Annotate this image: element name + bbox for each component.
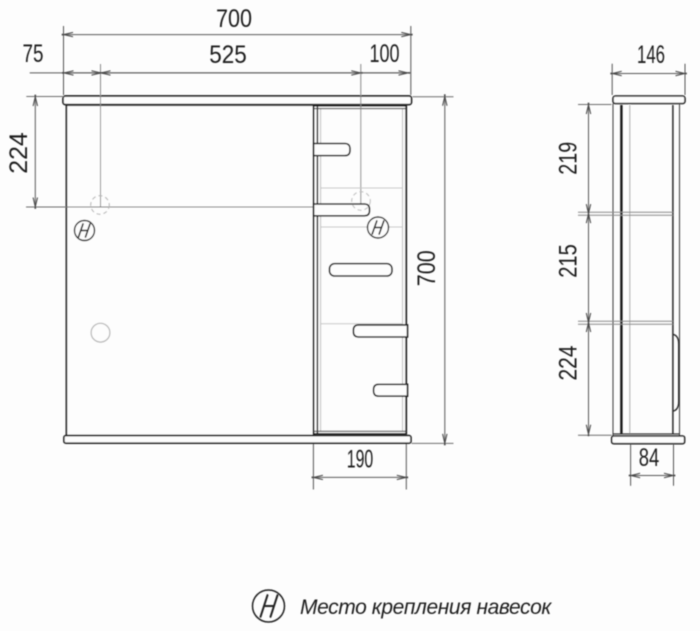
- svg-text:75: 75: [23, 40, 44, 68]
- svg-text:146: 146: [637, 41, 665, 69]
- svg-text:100: 100: [370, 40, 400, 68]
- svg-text:224: 224: [5, 132, 33, 174]
- svg-text:224: 224: [555, 345, 583, 380]
- svg-text:190: 190: [347, 446, 374, 474]
- svg-text:215: 215: [555, 244, 583, 278]
- svg-text:700: 700: [216, 5, 252, 33]
- svg-text:84: 84: [639, 444, 660, 472]
- svg-text:525: 525: [209, 41, 247, 69]
- svg-text:700: 700: [413, 250, 441, 286]
- svg-text:Место крепления навесок: Место крепления навесок: [300, 596, 552, 619]
- svg-text:219: 219: [555, 142, 583, 175]
